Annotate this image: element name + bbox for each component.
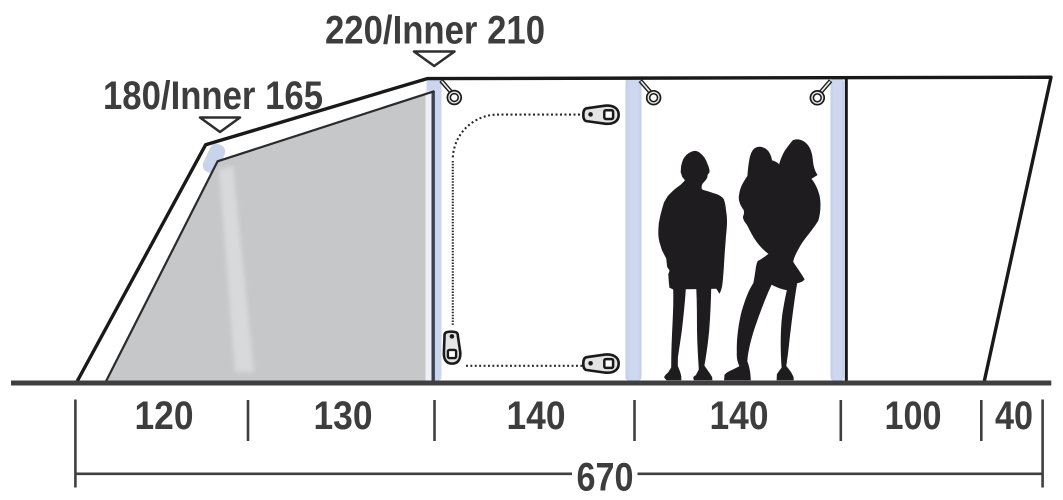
svg-text:140: 140 — [507, 394, 566, 438]
svg-text:40: 40 — [995, 394, 1033, 438]
svg-text:100: 100 — [885, 394, 942, 438]
svg-text:670: 670 — [577, 456, 634, 500]
svg-text:220/Inner 210: 220/Inner 210 — [325, 9, 545, 53]
svg-text:130: 130 — [314, 394, 373, 438]
svg-text:180/Inner 165: 180/Inner 165 — [103, 74, 323, 118]
svg-text:120: 120 — [135, 394, 194, 438]
svg-text:140: 140 — [710, 394, 769, 438]
